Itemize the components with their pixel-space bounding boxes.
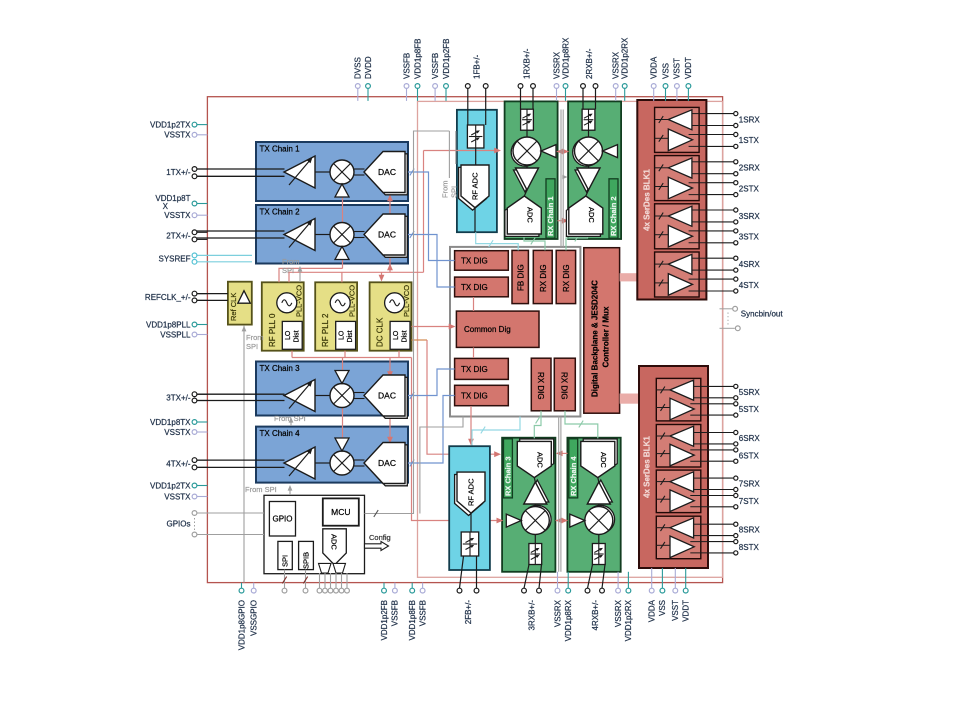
svg-text:DVSS: DVSS (354, 57, 363, 79)
svg-text:DAC: DAC (378, 230, 396, 240)
svg-text:RF PLL 0: RF PLL 0 (268, 313, 277, 347)
svg-text:SPI: SPI (281, 555, 290, 567)
svg-text:VSSFB: VSSFB (402, 53, 411, 79)
svg-text:3TX+/-: 3TX+/- (166, 393, 191, 402)
svg-text:Syncbin/out: Syncbin/out (741, 309, 784, 318)
svg-text:1STX: 1STX (739, 136, 760, 145)
svg-text:RF ADC: RF ADC (471, 172, 480, 200)
svg-text:7SRX: 7SRX (739, 480, 761, 489)
svg-text:RX Chain 3: RX Chain 3 (504, 456, 513, 496)
svg-text:VSSRX: VSSRX (614, 599, 623, 627)
svg-text:From SPI: From SPI (245, 485, 277, 494)
svg-text:1TX+/-: 1TX+/- (166, 168, 191, 177)
svg-text:RX Chain 4: RX Chain 4 (569, 456, 578, 496)
svg-text:4RXB+/-: 4RXB+/- (591, 600, 600, 631)
svg-text:VDDA: VDDA (650, 56, 659, 79)
svg-text:X: X (163, 202, 169, 211)
svg-text:8SRX: 8SRX (739, 526, 761, 535)
svg-text:4SRX: 4SRX (739, 260, 761, 269)
svg-text:From: From (282, 257, 300, 266)
svg-text:5SRX: 5SRX (739, 388, 761, 397)
svg-text:RX Chain 1: RX Chain 1 (546, 196, 555, 236)
svg-text:VDD1p2RX: VDD1p2RX (624, 599, 633, 641)
svg-text:LO: LO (285, 330, 292, 340)
svg-text:1RXB+/-: 1RXB+/- (523, 48, 532, 79)
svg-text:VSSTX: VSSTX (164, 428, 191, 437)
svg-text:ADC: ADC (535, 452, 544, 468)
svg-text:VSSTX: VSSTX (164, 492, 191, 501)
svg-text:VSSRX: VSSRX (552, 51, 561, 79)
svg-text:Ref CLK: Ref CLK (229, 293, 238, 321)
svg-text:ADC: ADC (525, 207, 534, 223)
svg-text:ADC: ADC (587, 207, 596, 223)
svg-text:RF ADC: RF ADC (467, 478, 476, 506)
svg-text:2FB+/-: 2FB+/- (464, 600, 473, 625)
svg-text:VDD1p8PLL: VDD1p8PLL (146, 320, 191, 329)
svg-text:VDD1p8T: VDD1p8T (155, 194, 190, 203)
svg-text:VSST: VSST (673, 58, 682, 79)
svg-text:SPI: SPI (450, 186, 459, 198)
svg-text:Dist: Dist (347, 330, 354, 342)
svg-text:2STX: 2STX (739, 185, 760, 194)
svg-text:VDD1p2FB: VDD1p2FB (380, 600, 389, 640)
svg-text:VSSTX: VSSTX (164, 131, 191, 140)
svg-text:SYSREF: SYSREF (158, 255, 190, 264)
svg-text:TX DIG: TX DIG (461, 392, 488, 401)
svg-text:VDD1p8TX: VDD1p8TX (150, 418, 191, 427)
svg-text:From: From (441, 181, 450, 199)
svg-text:7STX: 7STX (739, 497, 760, 506)
svg-text:VDD1p2FB: VDD1p2FB (442, 39, 451, 79)
svg-text:1SRX: 1SRX (739, 115, 761, 124)
svg-text:DAC: DAC (378, 458, 396, 468)
svg-text:ADC: ADC (599, 452, 608, 468)
svg-text:LO: LO (393, 330, 400, 340)
svg-text:RX DIG: RX DIG (560, 372, 569, 400)
svg-text:DVDD: DVDD (364, 56, 373, 79)
svg-text:LO: LO (339, 330, 346, 340)
svg-text:VSSRX: VSSRX (553, 599, 562, 627)
svg-text:4x SerDes BLK1: 4x SerDes BLK1 (642, 436, 651, 498)
svg-text:RX Chain 2: RX Chain 2 (609, 196, 618, 236)
svg-text:VDD1p8GPIO: VDD1p8GPIO (237, 600, 246, 650)
svg-text:VSS: VSS (661, 63, 670, 79)
svg-text:VSST: VSST (671, 600, 680, 621)
svg-text:VDDT: VDDT (682, 600, 691, 622)
svg-text:5STX: 5STX (739, 405, 760, 414)
svg-text:TX DIG: TX DIG (461, 256, 488, 265)
svg-text:SPI: SPI (282, 266, 294, 275)
svg-text:6SRX: 6SRX (739, 434, 761, 443)
svg-text:DC CLK: DC CLK (376, 317, 385, 347)
svg-text:VDD1p2RX: VDD1p2RX (621, 37, 630, 79)
svg-text:GPIOs: GPIOs (166, 520, 190, 529)
svg-text:8STX: 8STX (739, 543, 760, 552)
svg-text:REFCLK_+/-: REFCLK_+/- (145, 293, 191, 302)
svg-text:4STX: 4STX (739, 281, 760, 290)
svg-text:Common Dig: Common Dig (464, 325, 511, 334)
svg-text:TX Chain 4: TX Chain 4 (260, 429, 301, 438)
svg-text:2TX+/-: 2TX+/- (166, 232, 191, 241)
svg-text:VDDA: VDDA (648, 599, 657, 622)
svg-text:RX DIG: RX DIG (539, 264, 548, 292)
svg-text:Dist: Dist (401, 330, 408, 342)
svg-text:TX Chain 1: TX Chain 1 (260, 145, 301, 154)
svg-text:GPIO: GPIO (272, 515, 292, 524)
svg-text:VSS: VSS (658, 600, 667, 616)
svg-text:VDD1p8RX: VDD1p8RX (564, 599, 573, 641)
svg-text:VDD1p8FB: VDD1p8FB (408, 600, 417, 640)
svg-text:Digital Backplane & JESD204C: Digital Backplane & JESD204C (591, 280, 600, 397)
svg-text:3RXB+/-: 3RXB+/- (528, 600, 537, 631)
svg-text:2SRX: 2SRX (739, 164, 761, 173)
svg-text:TX DIG: TX DIG (461, 283, 488, 292)
svg-text:SPIB: SPIB (302, 552, 311, 569)
svg-text:Config: Config (369, 533, 391, 542)
svg-text:From: From (246, 333, 264, 342)
svg-text:TX Chain 3: TX Chain 3 (260, 364, 301, 373)
svg-text:3STX: 3STX (739, 233, 760, 242)
svg-text:VSSFB: VSSFB (391, 600, 400, 626)
svg-text:VDD1p8RX: VDD1p8RX (561, 37, 570, 79)
svg-text:RX DIG: RX DIG (536, 372, 545, 400)
svg-text:4TX+/-: 4TX+/- (166, 460, 191, 469)
svg-text:VDD1p8FB: VDD1p8FB (413, 39, 422, 79)
svg-text:ADC: ADC (330, 534, 339, 550)
svg-text:Dist: Dist (294, 330, 301, 342)
svg-text:VDD1p2TX: VDD1p2TX (150, 481, 191, 490)
svg-text:4x SerDes BLK1: 4x SerDes BLK1 (642, 169, 651, 231)
svg-text:TX Chain 2: TX Chain 2 (260, 208, 301, 217)
svg-text:DAC: DAC (378, 391, 396, 401)
svg-text:VSSRX: VSSRX (612, 51, 621, 79)
svg-text:VSSGPIO: VSSGPIO (250, 600, 259, 636)
svg-text:VSSTX: VSSTX (164, 211, 191, 220)
svg-text:1FB+/-: 1FB+/- (473, 54, 482, 79)
svg-text:RF PLL 2: RF PLL 2 (321, 313, 330, 347)
svg-text:MCU: MCU (331, 507, 350, 517)
svg-text:TX DIG: TX DIG (461, 365, 488, 374)
svg-text:RX DIG: RX DIG (562, 264, 571, 292)
svg-text:DAC: DAC (378, 167, 396, 177)
svg-text:VSSPLL: VSSPLL (160, 330, 191, 339)
svg-text:2RXB+/-: 2RXB+/- (585, 48, 594, 79)
svg-text:SPI: SPI (246, 342, 258, 351)
svg-text:Controller / Mux: Controller / Mux (602, 306, 611, 367)
svg-text:FB DIG: FB DIG (517, 264, 526, 291)
svg-text:VDDT: VDDT (684, 57, 693, 79)
svg-text:3SRX: 3SRX (739, 212, 761, 221)
svg-text:VDD1p2TX: VDD1p2TX (150, 121, 191, 130)
svg-text:VSSFB: VSSFB (418, 600, 427, 626)
svg-text:VSSFB: VSSFB (431, 53, 440, 79)
svg-text:6STX: 6STX (739, 451, 760, 460)
